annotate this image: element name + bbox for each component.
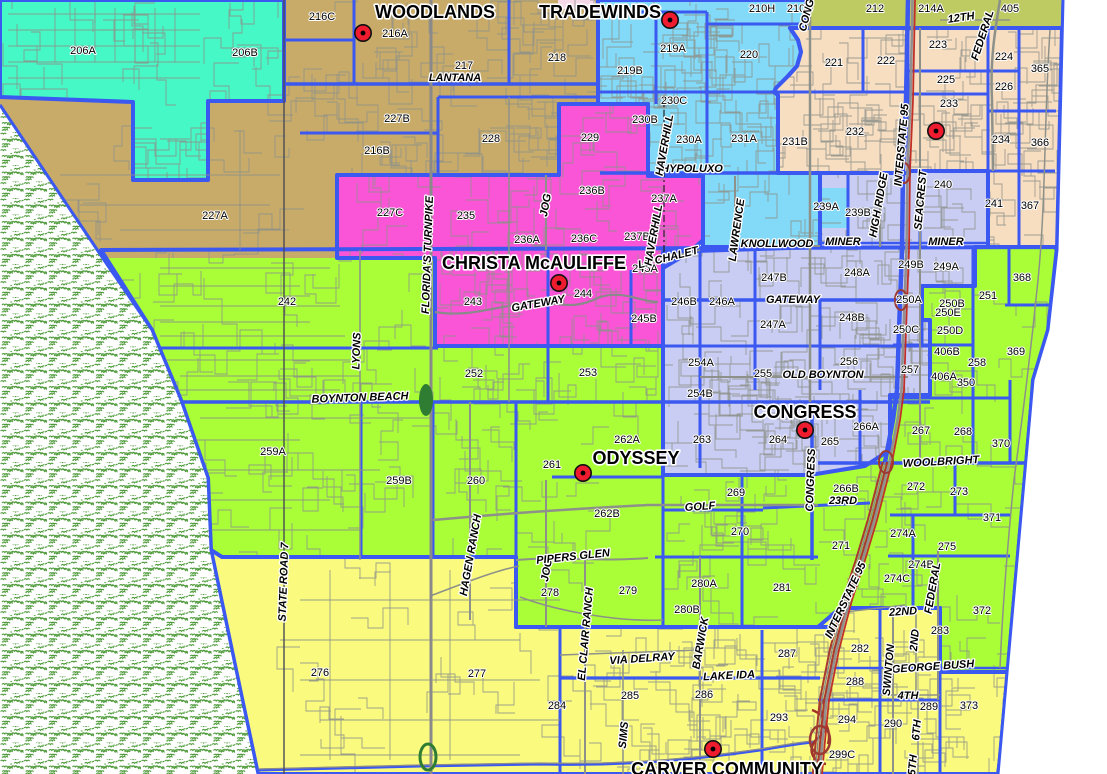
svg-text:GATEWAY: GATEWAY (766, 294, 822, 306)
svg-text:368: 368 (1013, 272, 1031, 284)
svg-text:252: 252 (465, 368, 483, 380)
svg-text:233: 233 (940, 98, 958, 110)
svg-text:217: 217 (455, 60, 473, 72)
svg-text:235: 235 (457, 210, 475, 222)
svg-text:216A: 216A (382, 28, 408, 40)
svg-text:254A: 254A (688, 357, 714, 369)
svg-text:2ND: 2ND (908, 629, 922, 653)
svg-text:237A: 237A (651, 193, 677, 205)
svg-text:254B: 254B (687, 388, 713, 400)
svg-text:284: 284 (548, 700, 566, 712)
svg-text:TRADEWINDS: TRADEWINDS (539, 2, 661, 22)
svg-text:229: 229 (581, 132, 599, 144)
svg-text:286: 286 (695, 689, 713, 701)
svg-text:234: 234 (992, 134, 1010, 146)
svg-text:ODYSSEY: ODYSSEY (592, 448, 679, 468)
svg-text:269: 269 (727, 487, 745, 499)
svg-text:255: 255 (754, 368, 772, 380)
svg-text:250C: 250C (893, 324, 919, 336)
svg-text:210H: 210H (749, 3, 775, 15)
svg-text:227C: 227C (377, 207, 403, 219)
svg-text:242: 242 (278, 296, 296, 308)
svg-text:22ND: 22ND (888, 605, 918, 619)
svg-text:230A: 230A (676, 134, 702, 146)
svg-text:274C: 274C (884, 573, 910, 585)
svg-text:223: 223 (929, 39, 947, 51)
svg-text:KNOLLWOOD: KNOLLWOOD (741, 238, 814, 250)
svg-text:259A: 259A (260, 446, 286, 458)
svg-text:231A: 231A (731, 133, 757, 145)
svg-text:224: 224 (995, 51, 1013, 63)
svg-text:265: 265 (821, 436, 839, 448)
svg-text:266B: 266B (833, 483, 859, 495)
svg-text:WOODLANDS: WOODLANDS (375, 2, 495, 22)
svg-text:248A: 248A (844, 267, 870, 279)
svg-text:258: 258 (968, 357, 986, 369)
svg-text:256: 256 (840, 356, 858, 368)
svg-text:243: 243 (464, 296, 482, 308)
svg-text:279: 279 (619, 585, 637, 597)
svg-text:405: 405 (1001, 3, 1019, 15)
svg-text:266A: 266A (853, 421, 879, 433)
svg-text:228: 228 (482, 133, 500, 145)
svg-text:276: 276 (311, 667, 329, 679)
svg-text:SIMS: SIMS (617, 721, 631, 749)
svg-text:206A: 206A (70, 45, 96, 57)
svg-text:222: 222 (877, 55, 895, 67)
svg-text:270: 270 (731, 526, 749, 538)
svg-text:CONGRESS: CONGRESS (753, 402, 856, 422)
svg-text:236B: 236B (579, 185, 605, 197)
svg-text:240: 240 (934, 179, 952, 191)
svg-text:219B: 219B (617, 65, 643, 77)
svg-text:369: 369 (1007, 346, 1025, 358)
svg-text:OLD BOYNTON: OLD BOYNTON (782, 369, 864, 381)
svg-text:LYONS: LYONS (350, 332, 363, 370)
svg-text:282: 282 (851, 643, 869, 655)
svg-text:246A: 246A (709, 296, 735, 308)
svg-text:248B: 248B (839, 312, 865, 324)
svg-text:241: 241 (985, 198, 1003, 210)
svg-text:236A: 236A (514, 234, 540, 246)
svg-text:278: 278 (541, 587, 559, 599)
svg-text:370: 370 (992, 438, 1010, 450)
svg-text:367: 367 (1021, 200, 1039, 212)
svg-text:247B: 247B (761, 272, 787, 284)
svg-text:275: 275 (938, 541, 956, 553)
svg-text:257: 257 (901, 364, 919, 376)
svg-text:250A: 250A (896, 294, 922, 306)
svg-text:206B: 206B (232, 47, 258, 59)
svg-text:280B: 280B (674, 604, 700, 616)
svg-text:218: 218 (548, 52, 566, 64)
svg-text:285: 285 (621, 690, 639, 702)
svg-text:249A: 249A (933, 261, 959, 273)
svg-text:372: 372 (973, 605, 991, 617)
svg-text:281: 281 (773, 582, 791, 594)
svg-text:294: 294 (838, 714, 856, 726)
svg-text:239B: 239B (845, 207, 871, 219)
svg-text:280A: 280A (691, 578, 717, 590)
svg-text:216B: 216B (364, 145, 390, 157)
svg-text:371: 371 (983, 512, 1001, 524)
svg-text:253: 253 (579, 367, 597, 379)
svg-text:250E: 250E (935, 307, 961, 319)
svg-text:GOLF: GOLF (684, 500, 716, 514)
svg-text:239A: 239A (813, 201, 839, 213)
svg-text:227B: 227B (384, 113, 410, 125)
svg-text:MINER: MINER (825, 236, 861, 248)
svg-text:406B: 406B (934, 346, 960, 358)
svg-text:226: 226 (995, 81, 1013, 93)
svg-text:299C: 299C (829, 749, 855, 761)
svg-text:220: 220 (740, 49, 758, 61)
svg-text:246B: 246B (671, 296, 697, 308)
svg-text:290: 290 (884, 718, 902, 730)
svg-text:365: 365 (1031, 63, 1049, 75)
svg-text:244: 244 (574, 288, 592, 300)
svg-text:271: 271 (832, 540, 850, 552)
svg-text:259B: 259B (386, 475, 412, 487)
svg-text:262A: 262A (614, 434, 640, 446)
svg-text:LANTANA: LANTANA (429, 72, 481, 84)
svg-text:268: 268 (954, 426, 972, 438)
svg-text:225: 225 (937, 74, 955, 86)
svg-text:212: 212 (866, 3, 884, 15)
svg-text:366: 366 (1031, 137, 1049, 149)
svg-text:MINER: MINER (928, 236, 964, 248)
svg-text:251: 251 (979, 290, 997, 302)
svg-text:283: 283 (931, 625, 949, 637)
svg-text:264: 264 (769, 434, 787, 446)
svg-text:5TH: 5TH (906, 753, 920, 774)
svg-text:CARVER COMMUNITY: CARVER COMMUNITY (631, 759, 823, 774)
svg-text:245B: 245B (631, 313, 657, 325)
svg-text:277: 277 (468, 668, 486, 680)
svg-text:293: 293 (770, 712, 788, 724)
svg-text:261: 261 (543, 459, 561, 471)
svg-text:260: 260 (467, 475, 485, 487)
svg-text:216C: 216C (309, 11, 335, 23)
svg-text:289: 289 (920, 701, 938, 713)
svg-text:273: 273 (950, 486, 968, 498)
svg-text:250D: 250D (937, 325, 963, 337)
svg-text:249B: 249B (898, 259, 924, 271)
svg-text:227A: 227A (202, 210, 228, 222)
svg-text:214A: 214A (918, 3, 944, 15)
svg-text:232: 232 (846, 126, 864, 138)
svg-text:230C: 230C (661, 95, 687, 107)
svg-text:221: 221 (825, 57, 843, 69)
svg-text:288: 288 (846, 676, 864, 688)
svg-text:4TH: 4TH (897, 690, 920, 702)
svg-text:262B: 262B (594, 508, 620, 520)
svg-text:267: 267 (912, 425, 930, 437)
svg-text:274A: 274A (890, 528, 916, 540)
svg-text:406A: 406A (931, 371, 957, 383)
svg-text:6TH: 6TH (910, 718, 924, 741)
svg-text:350: 350 (957, 377, 975, 389)
svg-text:287: 287 (778, 648, 796, 660)
svg-text:CHRISTA McAULIFFE: CHRISTA McAULIFFE (442, 253, 626, 273)
svg-text:HYPOLUXO: HYPOLUXO (661, 163, 723, 175)
svg-text:231B: 231B (782, 136, 808, 148)
svg-text:272: 272 (907, 481, 925, 493)
svg-text:263: 263 (693, 434, 711, 446)
svg-text:230B: 230B (632, 114, 658, 126)
svg-text:247A: 247A (760, 319, 786, 331)
svg-text:CONGRESS: CONGRESS (804, 448, 818, 512)
svg-text:23RD: 23RD (828, 495, 857, 507)
svg-text:373: 373 (960, 700, 978, 712)
svg-text:236C: 236C (571, 233, 597, 245)
svg-text:219A: 219A (660, 43, 686, 55)
